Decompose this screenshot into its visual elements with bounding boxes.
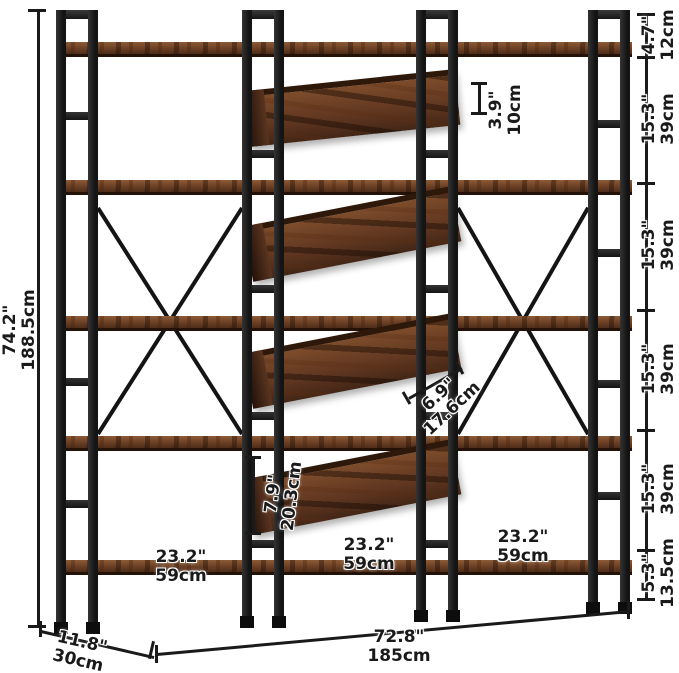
frame-rung [252,540,274,548]
frame-rung [252,285,274,293]
frame-rung [598,380,620,388]
dim-line-bin-front-height [252,458,255,534]
dim-right-segment-label: 15.3" 39cm [640,343,678,394]
frame-rung [66,500,88,508]
frame-foot [446,610,460,622]
dim-cm: 39cm [659,93,678,144]
dim-tick [637,429,655,432]
dim-cm: 39cm [659,463,678,514]
dim-overall-depth-label: 11.8" 30cm [51,628,110,673]
dim-inches: 15.3" [640,93,659,144]
shelf-level-1 [58,42,632,57]
dim-inches: 23.2" [155,548,206,567]
dim-tick [39,621,42,637]
frame-foot [414,610,428,622]
frame-foot [272,616,286,628]
dim-inches: 74.2" [1,289,20,371]
dim-overall-height-label: 74.2" 188.5cm [1,289,39,371]
dim-tick [245,532,261,535]
frame-rung [252,150,274,158]
dim-tick [471,82,487,85]
dim-tick [471,112,487,115]
frame-rung [598,249,620,257]
dim-tick [245,456,261,459]
frame-rung [426,285,448,293]
dim-tick [637,309,655,312]
frame-foot [240,616,254,628]
dim-cm: 188.5cm [20,289,39,371]
dim-inches: 23.2" [343,536,394,555]
frame-rung [252,412,274,420]
dim-cm: 39cm [659,343,678,394]
dim-inches: 5.3" [640,538,659,608]
dim-right-segment-label: 15.3" 39cm [640,219,678,270]
dim-tick [627,601,630,619]
frame-post [56,10,66,630]
dim-cm: 39cm [659,219,678,270]
dim-tick [28,625,46,628]
dim-inches: 15.3" [640,219,659,270]
dim-cm: 59cm [343,555,394,574]
dim-bin-back-height-label: 3.9" 10cm [487,84,525,135]
frame-post [448,10,458,618]
dim-shelf-width-left-label: 23.2" 59cm [155,548,206,586]
shelf-level-3 [58,316,632,331]
frame-foot [86,622,100,634]
frame-post [588,10,598,610]
dim-shelf-width-right-label: 23.2" 59cm [497,528,548,566]
frame-post [620,10,630,610]
frame-rung [66,112,88,120]
dim-line-bin-back-height [478,84,481,114]
frame-rung [426,540,448,548]
dim-right-segment-label: 15.3" 39cm [640,93,678,144]
dim-cm: 13.5cm [659,538,678,608]
dim-inches: 15.3" [640,343,659,394]
dim-inches: 72.8" [367,628,430,647]
dim-tick [28,9,46,12]
dim-tick [637,182,655,185]
frame-post [274,10,284,624]
dim-right-segment-label: 5.3" 13.5cm [640,538,678,608]
dim-cm: 59cm [497,547,548,566]
dim-inches: 15.3" [640,463,659,514]
dim-cm: 185cm [367,647,430,666]
dim-cm: 12cm [659,9,678,60]
dim-inches: 3.9" [487,84,506,135]
frame-rung [66,378,88,386]
frame-rung [598,492,620,500]
frame-post [416,10,426,618]
dim-right-segment-label: 4.7" 12cm [640,9,678,60]
frame-post [88,10,98,630]
dim-right-segment-label: 15.3" 39cm [640,463,678,514]
dim-cm: 10cm [506,84,525,135]
shelf-level-2 [58,180,632,195]
dim-inches: 4.7" [640,9,659,60]
dim-cm: 59cm [155,567,206,586]
bookshelf-dimension-diagram: 74.2" 188.5cm 4.7" 12cm 15.3" 39cm 15.3"… [0,0,679,673]
dim-shelf-width-middle-label: 23.2" 59cm [343,536,394,574]
shelf-level-4 [58,436,632,451]
dim-inches: 23.2" [497,528,548,547]
frame-rung [426,150,448,158]
frame-rung [598,120,620,128]
dim-overall-width-label: 72.8" 185cm [367,628,430,666]
dim-tick [155,645,158,663]
